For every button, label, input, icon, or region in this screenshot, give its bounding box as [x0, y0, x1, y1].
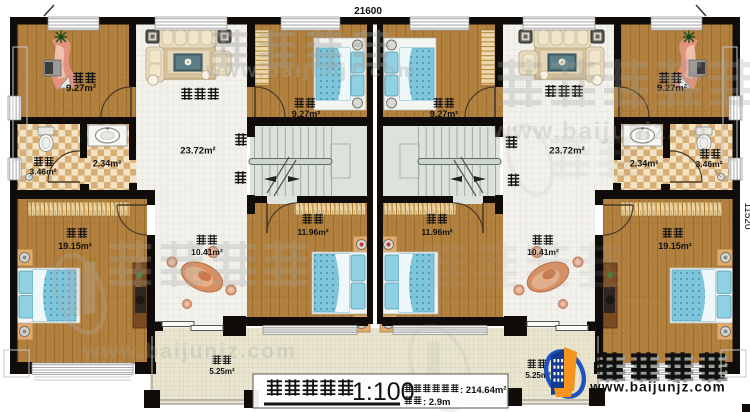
svg-text:23.72m²: 23.72m² [180, 146, 215, 157]
svg-text:2.34m²: 2.34m² [93, 159, 122, 169]
svg-text:3.46m²: 3.46m² [696, 159, 723, 169]
svg-text:www.baijunjz.com: www.baijunjz.com [205, 61, 418, 82]
svg-text:21600: 21600 [354, 6, 382, 17]
svg-text:www.baijunjz.com: www.baijunjz.com [82, 340, 296, 363]
svg-text:9.27m²: 9.27m² [66, 83, 96, 94]
svg-text:: 2.9m: : 2.9m [423, 397, 450, 408]
svg-text:www.baijunjz.com: www.baijunjz.com [589, 380, 726, 395]
svg-text:: 214.64m²: : 214.64m² [460, 385, 506, 396]
svg-text:5.25m²: 5.25m² [209, 367, 235, 376]
svg-text:11.96m²: 11.96m² [297, 227, 328, 237]
svg-text:19.15m²: 19.15m² [658, 241, 692, 251]
svg-text:19.15m²: 19.15m² [58, 241, 92, 251]
svg-text:9.27m²: 9.27m² [430, 109, 459, 119]
svg-text:11520: 11520 [742, 202, 750, 230]
svg-text:3.46m²: 3.46m² [30, 167, 57, 177]
svg-text:9.27m²: 9.27m² [292, 109, 321, 119]
svg-text:11.96m²: 11.96m² [421, 227, 452, 237]
